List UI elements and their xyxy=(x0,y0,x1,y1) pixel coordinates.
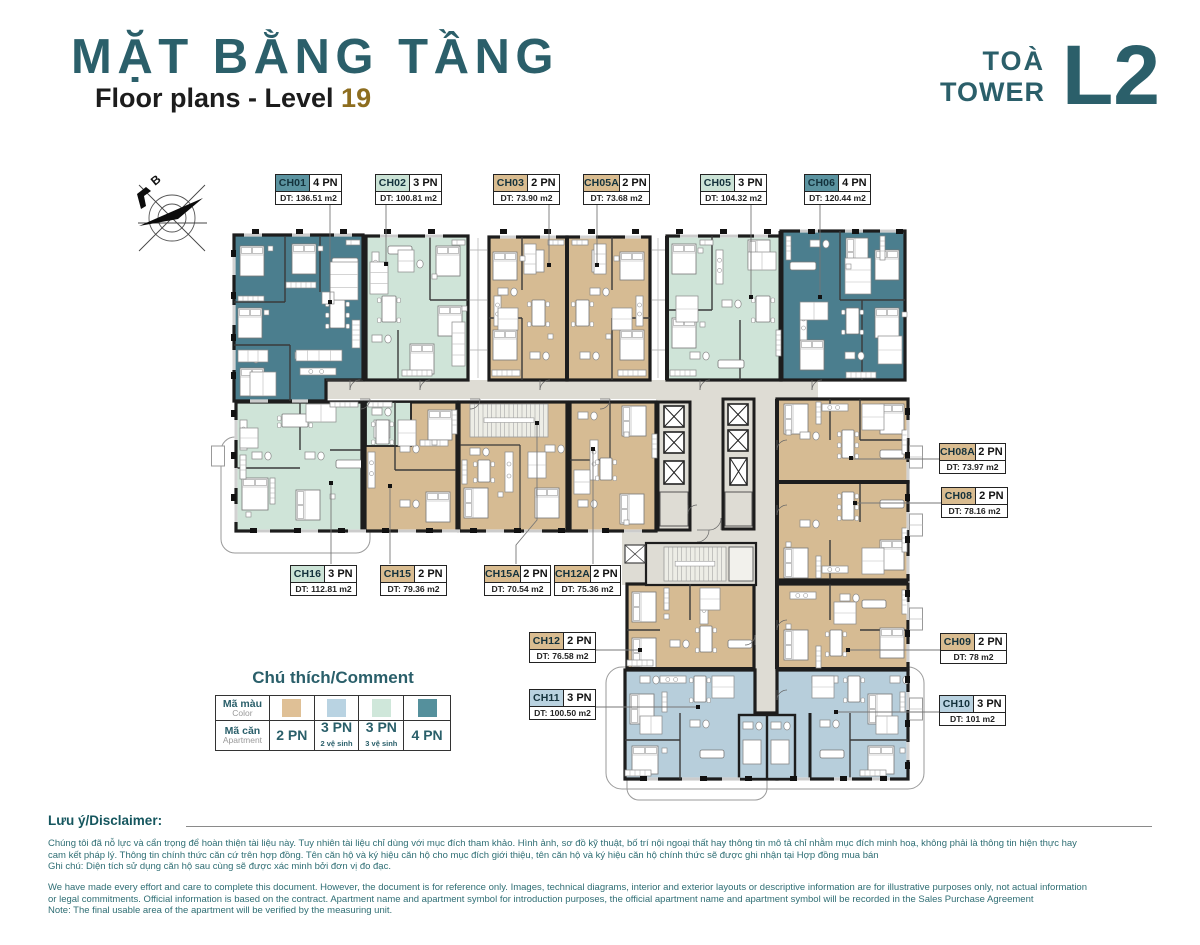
svg-text:B: B xyxy=(148,172,164,189)
